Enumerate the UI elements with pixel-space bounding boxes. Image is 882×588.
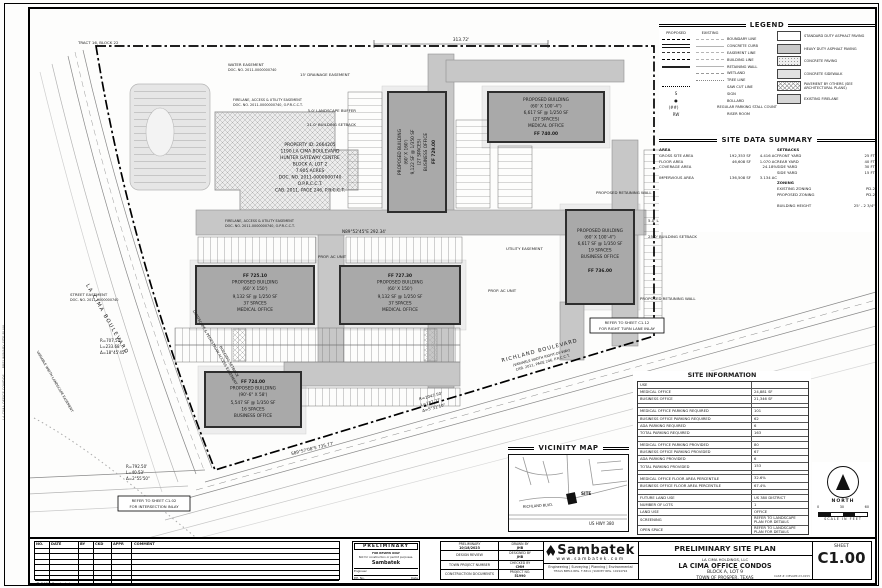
legend-row: BUILDING LINE <box>659 56 777 63</box>
property-line: CAB. 2011, PAGE 246, P.R.C.C.T. <box>275 188 345 194</box>
building-label: PROPOSED BUILDING <box>230 386 276 392</box>
callout-building-setback: 25.0' BUILDING SETBACK <box>648 234 697 239</box>
revision-row <box>35 581 339 585</box>
copyright-text: © 2023 Sambatek <box>36 581 71 586</box>
sign-symbol: S <box>659 91 693 96</box>
riser-room-symbol: RW <box>659 112 693 117</box>
callout-ac-unit: PROP. AC UNIT <box>318 254 347 259</box>
building-ff-724: FF 724.00 PROPOSED BUILDING (90'-6" X 58… <box>205 372 301 427</box>
stamp-title: PRELIMINARY <box>354 543 418 550</box>
zoning-header: ZONING <box>777 180 875 185</box>
legend-paving-row: CONCRETE PAVING <box>777 56 875 66</box>
legend-paving-row: HEAVY DUTY ASPHALT PAVING <box>777 44 875 54</box>
date-label: Date <box>411 576 418 580</box>
svg-text:FOR RIGHT TURN LANE INLAY: FOR RIGHT TURN LANE INLAY <box>599 326 656 331</box>
pe-label: P.E. No. <box>354 576 365 580</box>
building-ff-label: FF 725.10 <box>243 273 267 279</box>
site-label: SITE <box>581 491 591 496</box>
legend-row: RETAINING WALL <box>659 63 777 70</box>
table-row: BUSINESS OFFICE21,346 SF <box>638 396 808 403</box>
table-row: MEDICAL OFFICE PARKING PROVIDED80 <box>638 442 808 449</box>
stamp-brand: Sambatek <box>354 560 418 566</box>
sheet-number-block: SHEET C1.00 <box>812 541 872 580</box>
scale-caption: SCALE IN FEET <box>812 517 874 521</box>
callout-utility-easement: UTILITY EASEMENT <box>506 246 543 251</box>
legend-row: TREE LINE <box>659 77 777 84</box>
building-label: (27 SPACES) <box>417 138 423 165</box>
firm-url: www.sambatek.com <box>543 557 638 562</box>
legend-paving-row: EXISTING FIRELANE <box>777 94 875 104</box>
building-ff-label: FF 727.30 <box>388 273 412 279</box>
firm-logo-block: Sambatek www.sambatek.com Engineering | … <box>543 541 639 580</box>
callout-landscape-buffer: 5.0' LANDSCAPE BUFFER <box>308 108 357 113</box>
scale-numbers: 0 30 60 <box>817 505 869 509</box>
building-label: PROPOSED BUILDING <box>377 280 423 286</box>
bollard-symbol: ● <box>659 98 693 103</box>
site-information-table: USE MEDICAL OFFICE24,881 SF BUSINESS OFF… <box>637 381 809 535</box>
table-row: BUSINESS OFFICE FLOOR AREA PERCENTILE67.… <box>638 483 808 490</box>
building-ff-725: FF 725.10 PROPOSED BUILDING (60' X 150')… <box>196 266 314 324</box>
building-label: PROPOSED BUILDING <box>523 97 569 103</box>
table-row: USE <box>638 382 808 389</box>
callout-variable-landscape: VARIABLE WIDTH LANDSCAPE EASEMENT <box>36 350 75 414</box>
svg-text:Δ=2°55'50": Δ=2°55'50" <box>126 476 150 481</box>
credit-cell: DESIGNED BYJHB <box>497 551 543 560</box>
tree-line <box>34 418 205 545</box>
svg-text:REFER TO SHEET C1.12: REFER TO SHEET C1.12 <box>605 320 650 325</box>
hwy-label: US HWY 380 <box>589 521 615 526</box>
table-row: ADA PARKING REQUIRED6 <box>638 423 808 430</box>
building-ff-label: FF 729.00 <box>431 140 437 164</box>
svg-text:S89°57'08"E 735.77': S89°57'08"E 735.77' <box>291 441 335 456</box>
note-right-turn-inlay: REFER TO SHEET C1.12 FOR RIGHT TURN LANE… <box>590 318 664 333</box>
credit-cell: DRAWN BYJHB <box>497 542 543 551</box>
building-label: 9,132 SF @ 1/250 SF <box>233 294 278 300</box>
setback-row: SIDE YARD15 FT <box>777 170 875 176</box>
credit-cell: CHECKED BYCMM <box>497 561 543 570</box>
building-label: PROPOSED BUILDING <box>232 280 278 286</box>
property-line: 1190 LA CIMA BOULEVARD <box>280 149 340 155</box>
callout-water-doc: DOC. NO. 2011-0000000740 <box>228 68 276 72</box>
existing-parking-lot <box>130 84 210 190</box>
svg-text:L=40.53': L=40.53' <box>126 470 144 475</box>
property-line: PROPERTY ID: 2664205 <box>284 142 335 148</box>
property-line: HUNTER GATEWAY CENTRE <box>280 155 340 161</box>
building-ff-736: PROPOSED BUILDING (60' X 100'-4") 6,617 … <box>566 210 634 304</box>
revision-table-header: NO. DATE BY CKD APPR COMMENT <box>35 542 339 549</box>
building-label: 6,617 SF @ 1/350 SF <box>578 241 623 247</box>
building-label: 19 SPACES <box>588 248 611 254</box>
case-number: CASE #: DEVAPP-23-0155 <box>774 574 810 578</box>
building-label: PROPOSED BUILDING <box>577 228 623 234</box>
building-label: 6,617 SF @ 1/250 SF <box>524 110 569 116</box>
building-label: (60' X 100'-4") <box>530 104 562 110</box>
table-row: BUSINESS OFFICE PARKING PROVIDED67 <box>638 449 808 456</box>
concrete-sidewalk-swatch <box>777 69 801 79</box>
bearing-label: S89°57'08"E 735.77' <box>291 441 335 456</box>
credits-column: DRAWN BYJHB DESIGNED BYJHB CHECKED BYCMM… <box>497 541 544 580</box>
area-header: AREA <box>659 147 777 152</box>
pavement-by-others-swatch <box>777 81 801 91</box>
building-label: (60' X 160') <box>404 139 410 164</box>
richland-blvd-label: RICHLAND BOULEVARD (VARIABLE WIDTH RIGHT… <box>501 338 581 375</box>
zoning-row: PROPOSED ZONINGPD-2 <box>777 192 875 198</box>
project-title-block: PRELIMINARY SITE PLAN LA CIMA HOLDINGS, … <box>638 541 813 580</box>
vicinity-map-title: VICINITY MAP <box>508 444 629 452</box>
building-label: 9,122 SF @ 1/350 SF <box>410 129 416 174</box>
callout-drainage: 15' DRAINAGE EASEMENT <box>300 72 351 77</box>
building-ff-740: PROPOSED BUILDING (60' X 100'-4") 6,617 … <box>488 92 604 142</box>
north-label: NORTH <box>812 499 874 504</box>
stamp-line2: Not for construction or permit purposes. <box>357 555 415 559</box>
legend-row-stall-count: (##)REGULAR PARKING STALL COUNT <box>659 104 777 111</box>
site-data-row: COVERAGE AREA24.18% <box>659 164 777 170</box>
project-name: LA CIMA OFFICE CONDOS <box>638 562 812 570</box>
legend-row: CONCRETE CURB <box>659 43 777 50</box>
legend-title: LEGEND <box>659 21 875 29</box>
site-information-title: SITE INFORMATION <box>633 371 811 379</box>
building-label: PROPOSED BUILDING <box>397 129 403 175</box>
table-row: MEDICAL OFFICE FLOOR AREA PERCENTILE32.6… <box>638 475 808 482</box>
sheet-edge-text: LA CIMA OFFICE CONDOS — PRELIMINARY SITE… <box>2 325 6 420</box>
callout-ac-unit: PROP. AC UNIT <box>488 288 517 293</box>
north-arrow-block: NORTH 0 30 60 SCALE IN FEET <box>812 462 874 535</box>
status-cell: CONSTRUCTION DOCUMENTS <box>441 570 498 579</box>
callout-firelane: FIRELANE, ACCESS & UTILITY EASEMENT <box>225 219 295 223</box>
preliminary-stamp: PRELIMINARY FOR REVIEW ONLY Not for cons… <box>352 541 420 580</box>
callout-street-easement: STREET EASEMENT <box>70 292 108 297</box>
svg-text:VARIABLE WIDTH LANDSCAPE EASEM: VARIABLE WIDTH LANDSCAPE EASEMENT <box>36 350 75 414</box>
callout-tract: TRACT 16, BLOCK 22 <box>77 40 119 45</box>
table-row: BUSINESS OFFICE PARKING REQUIRED62 <box>638 416 808 423</box>
legend-row: SAW CUT LINE <box>659 84 777 91</box>
sheet-title: PRELIMINARY SITE PLAN <box>638 542 812 556</box>
callout-firelane-doc: DOC. NO. 2011-0000000740, O.P.R.C.C.T. <box>225 224 295 228</box>
building-label: MEDICAL OFFICE <box>237 307 273 313</box>
building-label: (90'-6" X 58') <box>239 392 268 398</box>
legend-row-riser: RWRISER ROOM <box>659 111 777 118</box>
note-intersection-inlay: REFER TO SHEET C1.02 FOR INTERSECTION IN… <box>118 496 190 511</box>
heavy-duty-swatch <box>777 44 801 54</box>
building-label: MEDICAL OFFICE <box>528 123 564 129</box>
table-row: TOTAL PARKING PROVIDED153 <box>638 463 808 470</box>
status-column: PRELIMINARY10/18/2023 DESIGN REVIEW TOWN… <box>440 541 499 580</box>
legend-paving-row: CONCRETE SIDEWALK <box>777 69 875 79</box>
legend-paving-row: STANDARD DUTY ASPHALT PAVING <box>777 31 875 41</box>
property-line: O.P.R.C.C.T. <box>298 181 323 187</box>
building-label: 5,547 SF @ 1/350 SF <box>231 400 276 406</box>
table-row: NUMBER OF LOTS1 <box>638 502 808 509</box>
building-label: (27 SPACES) <box>533 117 560 123</box>
stall-count-symbol: (##) <box>659 105 688 110</box>
vicinity-map-drawing: SITE US HWY 380 RICHLAND BLVD. <box>509 455 627 528</box>
engineer-label: Engineer <box>354 569 367 573</box>
callout-retaining-wall: PROPOSED RETAINING WALL <box>640 296 696 301</box>
existing-firelane-swatch <box>777 94 801 104</box>
site-information-panel: SITE INFORMATION USE MEDICAL OFFICE24,88… <box>633 371 811 535</box>
property-line: DOC. NO. 2011-0000000740 <box>279 175 342 181</box>
building-label: (60' X 150') <box>387 286 412 292</box>
table-row: FUTURE LAND USEUS 380 DISTRICT <box>638 495 808 502</box>
firm-name: Sambatek <box>543 544 638 557</box>
building-height-row: BUILDING HEIGHT25' - 2 3/4" <box>777 203 875 209</box>
legend-row-bollard: ●BOLLARD <box>659 97 777 104</box>
status-cell: TOWN PROJECT NUMBER <box>441 561 498 570</box>
table-row: LAND USEOFFICE <box>638 509 808 516</box>
table-row: MEDICAL OFFICE24,881 SF <box>638 389 808 396</box>
dimension-label: 313.72' <box>453 37 470 43</box>
building-label: BUSINESS OFFICE <box>581 254 619 260</box>
site-marker <box>566 492 577 505</box>
richland-mini-label: RICHLAND BLVD. <box>523 503 554 509</box>
table-row: TOTAL PARKING REQUIRED163 <box>638 430 808 437</box>
callout-street-doc: DOC. NO. 2011-0000000740 <box>70 298 118 302</box>
table-row: SCREENINGREFER TO LANDSCAPE PLAN FOR DET… <box>638 516 808 526</box>
callout-building-setback: 21.0' BUILDING SETBACK <box>307 122 356 127</box>
legend-row: WETLAND <box>659 70 777 77</box>
site-data-title: SITE DATA SUMMARY <box>659 136 875 144</box>
table-row: MEDICAL OFFICE PARKING REQUIRED101 <box>638 408 808 415</box>
callout-water-easement: WATER EASEMENT <box>228 62 265 67</box>
svg-text:R=792.50': R=792.50' <box>126 464 147 469</box>
callout-retaining-wall: PROPOSED RETAINING WALL <box>596 190 652 195</box>
vicinity-map-panel: VICINITY MAP SITE US HWY 380 RICHLAND BL… <box>508 444 629 535</box>
legend-row: EASEMENT LINE <box>659 50 777 57</box>
building-label: 16 SPACES <box>241 407 264 413</box>
credit-cell: PROJECT NO.51990 <box>497 570 543 579</box>
setbacks-header: SETBACKS <box>777 147 875 152</box>
building-ff-label: FF 740.00 <box>534 131 558 137</box>
legend-proposed-header: PROPOSED <box>659 31 693 35</box>
property-line: BLOCK A, LOT 2 <box>293 162 328 168</box>
building-label: 37 SPACES <box>243 301 266 307</box>
legend-row: BOUNDARY LINE <box>659 36 777 43</box>
status-cell: DESIGN REVIEW <box>441 551 498 560</box>
building-label: (60' X 150') <box>242 286 267 292</box>
callout-firelane-doc: DOC. NO. 2011-0000000740, O.P.R.C.C.T. <box>233 103 303 107</box>
building-ff-729: PROPOSED BUILDING (60' X 160') 9,122 SF … <box>388 92 446 212</box>
sheet-number: C1.00 <box>812 549 871 567</box>
building-label: MEDICAL OFFICE <box>382 307 418 313</box>
drawing-sheet: PROPERTY ID: 2664205 1190 LA CIMA BOULEV… <box>0 0 882 588</box>
svg-text:FOR INTERSECTION INLAY: FOR INTERSECTION INLAY <box>129 504 179 509</box>
sambatek-logo-icon <box>546 545 555 556</box>
building-label: (60' X 100'-4") <box>584 235 616 241</box>
legend-row-sign: SSIGN <box>659 90 777 97</box>
svg-text:L=233.68': L=233.68' <box>100 344 121 349</box>
standard-duty-swatch <box>777 31 801 41</box>
legend-paving-row: PAVEMENT BY OTHERS (SEE ARCHITECTURAL PL… <box>777 81 875 91</box>
north-arrow-icon <box>827 466 859 498</box>
legend-panel: LEGEND PROPOSED EXISTING BOUNDARY LINE C… <box>659 21 875 134</box>
site-data-summary-panel: SITE DATA SUMMARY AREA GROSS SITE AREA19… <box>659 136 875 232</box>
title-strip: NO. DATE BY CKD APPR COMMENT © 2023 Samb… <box>28 537 877 587</box>
svg-text:REFER TO SHEET C1.02: REFER TO SHEET C1.02 <box>132 498 177 503</box>
building-label: 37 SPACES <box>388 301 411 307</box>
revision-table: NO. DATE BY CKD APPR COMMENT <box>34 541 340 580</box>
building-ff-label: FF 724.00 <box>241 379 265 385</box>
callout-firelane: FIRELANE, ACCESS & UTILITY EASEMENT <box>233 98 303 102</box>
firm-registration: TEXAS BPELS REG. F-5814 | SURVEY REG. 10… <box>543 569 638 573</box>
building-ff-label: FF 736.00 <box>588 268 612 274</box>
building-label: 9,132 SF @ 1/250 SF <box>378 294 423 300</box>
site-data-row: IMPERVIOUS AREA136,508 SF3.134 AC <box>659 175 777 181</box>
building-ff-727: FF 727.30 PROPOSED BUILDING (60' X 150')… <box>340 266 460 324</box>
bearing-label: N89°52'45"E 292.34' <box>342 229 386 234</box>
legend-existing-header: EXISTING <box>693 31 727 35</box>
concrete-paving-swatch <box>777 56 801 66</box>
table-row: OPEN SPACEREFER TO LANDSCAPE PLAN FOR DE… <box>638 526 808 535</box>
table-row: ADA PARKING PROVIDED6 <box>638 456 808 463</box>
building-label: BUSINESS OFFICE <box>423 133 429 171</box>
vicinity-map: SITE US HWY 380 RICHLAND BLVD. <box>508 454 629 532</box>
property-line: 7.905 ACRES <box>296 168 325 174</box>
building-label: BUSINESS OFFICE <box>234 413 272 419</box>
status-cell: PRELIMINARY10/18/2023 <box>441 542 498 551</box>
